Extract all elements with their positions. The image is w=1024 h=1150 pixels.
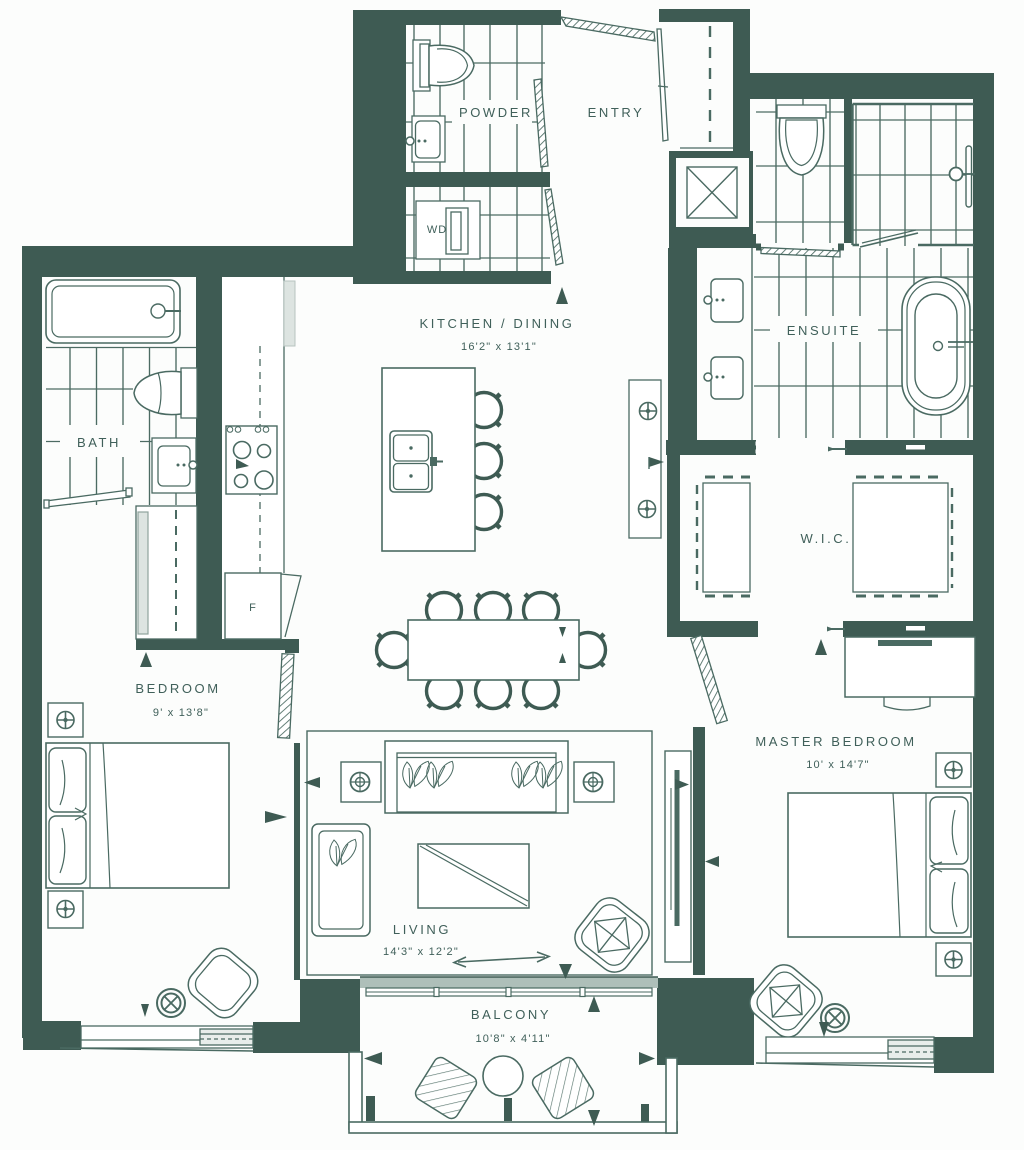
svg-text:ENSUITE: ENSUITE — [787, 323, 862, 338]
svg-text:10' x 14'7": 10' x 14'7" — [806, 759, 870, 771]
svg-text:9' x 13'8": 9' x 13'8" — [153, 707, 209, 719]
svg-text:F: F — [249, 602, 257, 614]
svg-text:14'3" x 12'2": 14'3" x 12'2" — [383, 946, 459, 958]
svg-text:10'8" x 4'11": 10'8" x 4'11" — [475, 1033, 550, 1045]
svg-text:WD: WD — [427, 224, 447, 236]
svg-text:POWDER: POWDER — [459, 105, 533, 120]
svg-text:ENTRY: ENTRY — [588, 105, 645, 120]
svg-text:BATH: BATH — [77, 435, 121, 450]
svg-text:KITCHEN / DINING: KITCHEN / DINING — [420, 316, 575, 331]
svg-text:BEDROOM: BEDROOM — [135, 681, 220, 696]
svg-text:16'2" x 13'1": 16'2" x 13'1" — [461, 341, 537, 353]
svg-text:W.I.C.: W.I.C. — [801, 531, 852, 546]
svg-text:MASTER BEDROOM: MASTER BEDROOM — [755, 734, 916, 749]
svg-text:BALCONY: BALCONY — [471, 1007, 551, 1022]
svg-text:LIVING: LIVING — [393, 922, 451, 937]
